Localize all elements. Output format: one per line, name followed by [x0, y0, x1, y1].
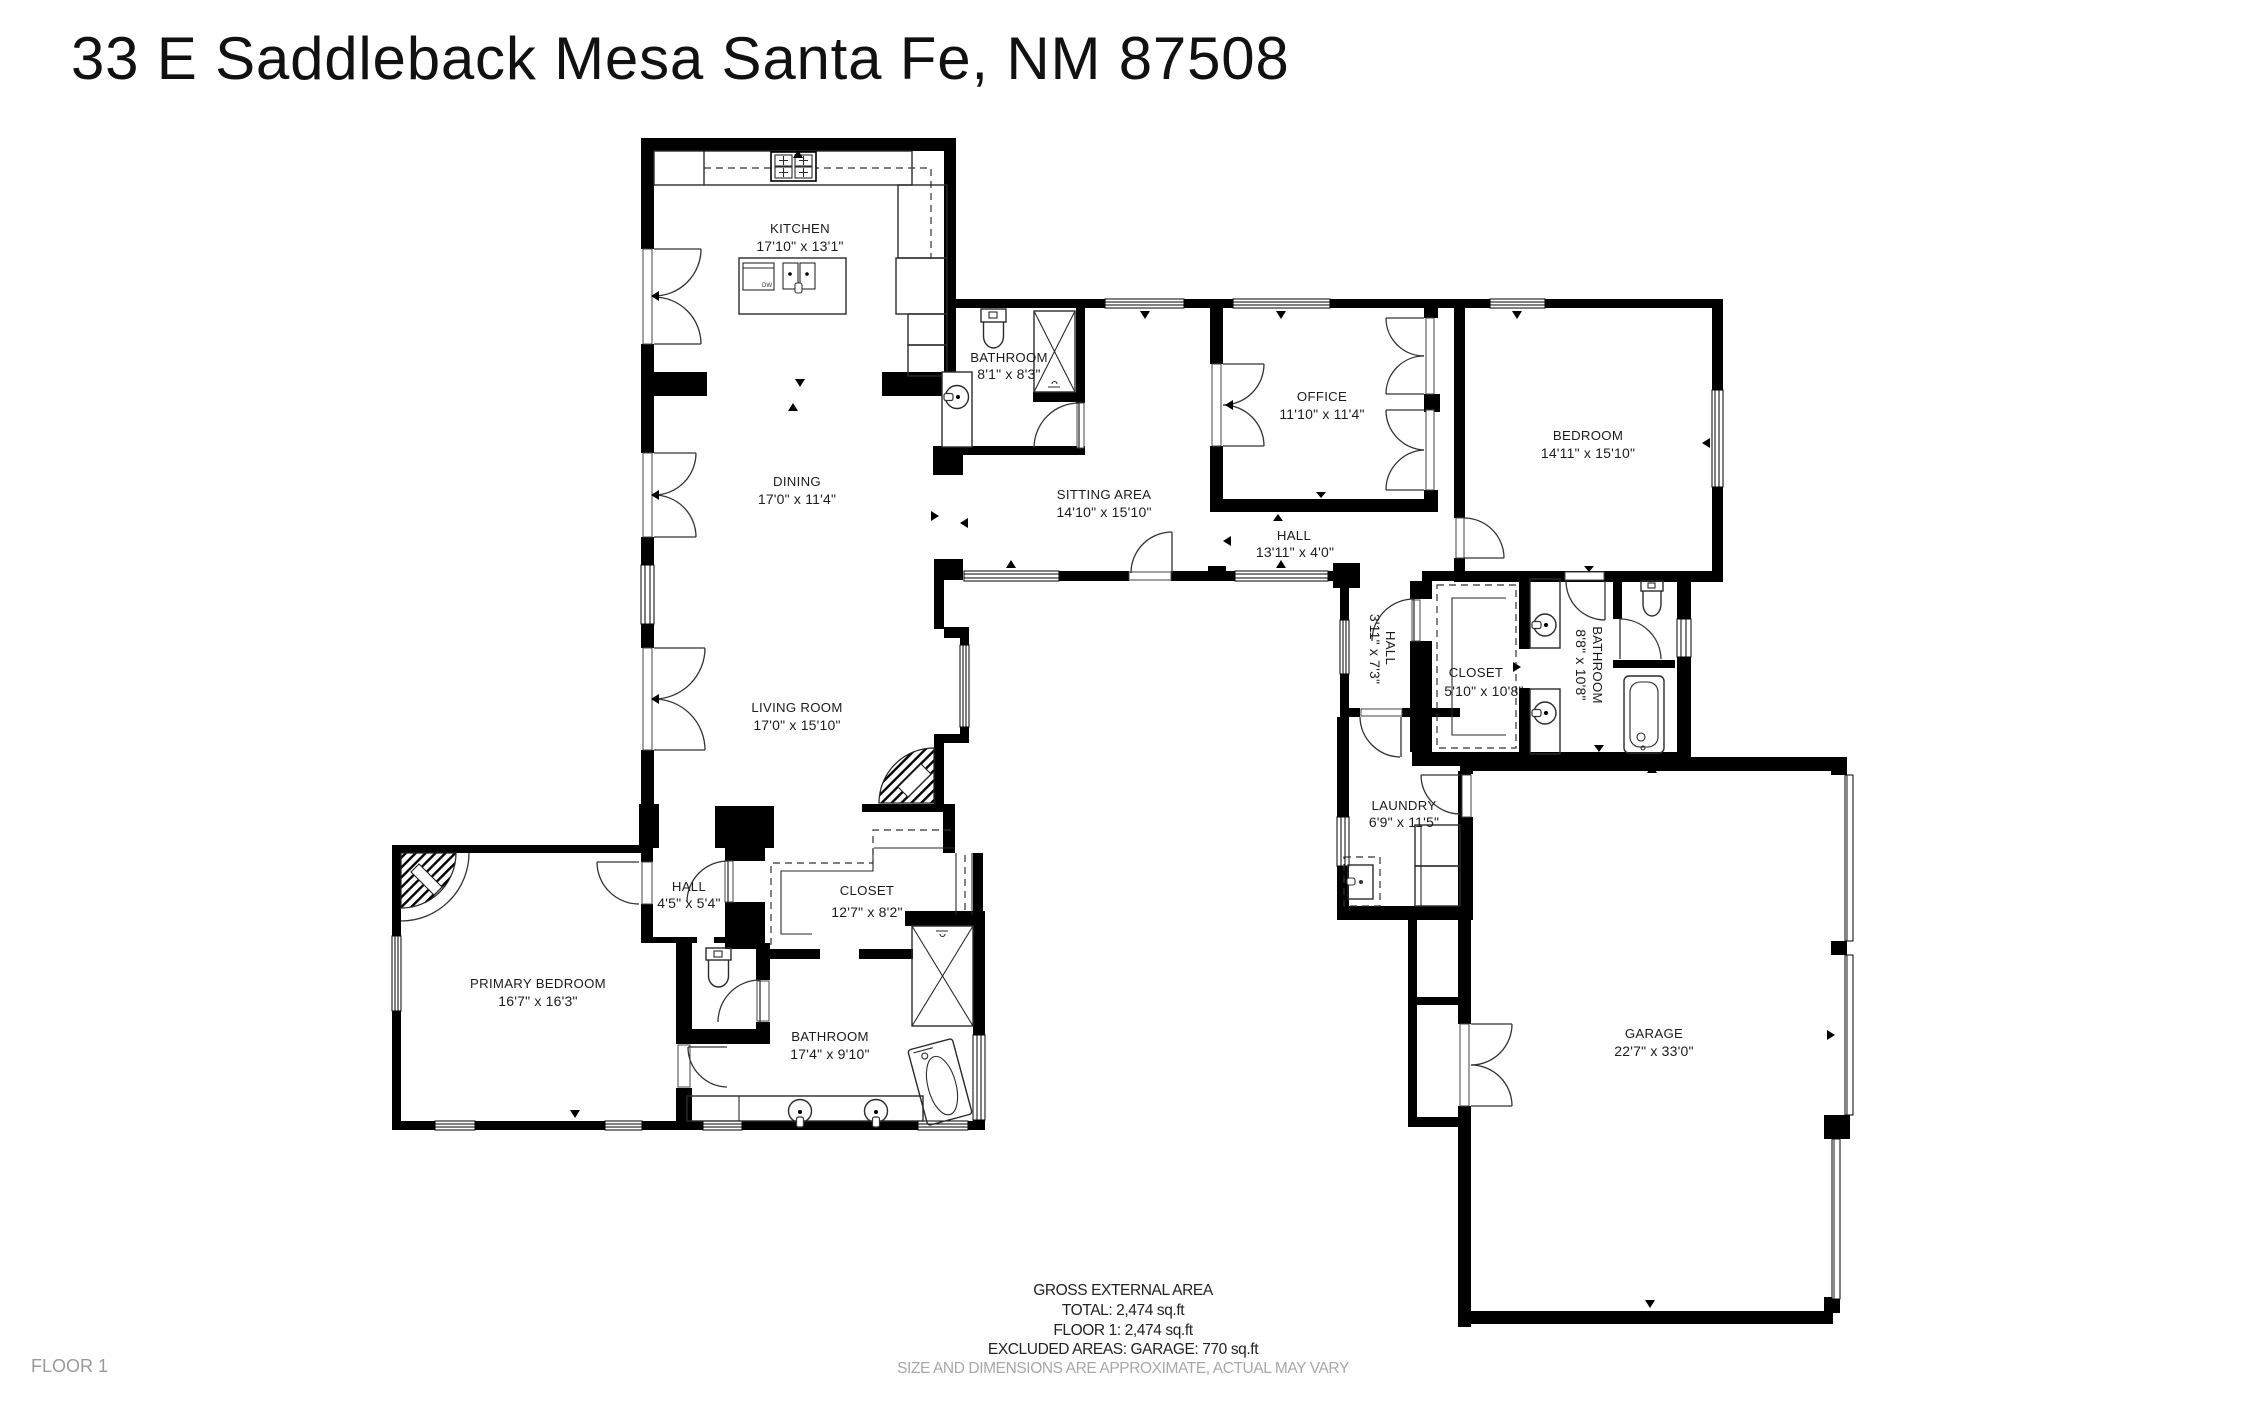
svg-text:SIZE AND DIMENSIONS ARE APPROX: SIZE AND DIMENSIONS ARE APPROXIMATE, ACT…	[897, 1360, 1349, 1377]
svg-text:8'1" x 8'3": 8'1" x 8'3"	[977, 366, 1040, 382]
svg-text:14'11" x 15'10": 14'11" x 15'10"	[1541, 445, 1635, 461]
svg-text:FLOOR 1: 2,474 sq.ft: FLOOR 1: 2,474 sq.ft	[1053, 1322, 1193, 1339]
svg-text:16'7" x 16'3": 16'7" x 16'3"	[498, 993, 577, 1009]
svg-text:8'8" x 10'8": 8'8" x 10'8"	[1573, 629, 1589, 700]
svg-text:HALL: HALL	[1277, 528, 1311, 543]
svg-text:CLOSET: CLOSET	[840, 883, 895, 898]
svg-text:3'11" x 7'3": 3'11" x 7'3"	[1367, 614, 1383, 684]
svg-text:EXCLUDED AREAS: GARAGE: 770 sq: EXCLUDED AREAS: GARAGE: 770 sq.ft	[988, 1341, 1259, 1358]
svg-text:LAUNDRY: LAUNDRY	[1372, 798, 1437, 813]
svg-text:4'5" x 5'4": 4'5" x 5'4"	[657, 895, 720, 911]
svg-text:BATHROOM: BATHROOM	[970, 350, 1048, 365]
svg-text:17'0" x 11'4": 17'0" x 11'4"	[758, 491, 836, 507]
svg-text:22'7" x 33'0": 22'7" x 33'0"	[1614, 1043, 1693, 1059]
svg-text:BATHROOM: BATHROOM	[1590, 626, 1605, 704]
svg-text:FLOOR 1: FLOOR 1	[31, 1356, 108, 1376]
svg-text:5'10" x 10'8": 5'10" x 10'8"	[1444, 683, 1523, 699]
svg-text:CLOSET: CLOSET	[1449, 665, 1504, 680]
svg-text:KITCHEN: KITCHEN	[770, 221, 830, 236]
svg-text:SITTING AREA: SITTING AREA	[1057, 487, 1151, 502]
svg-text:OFFICE: OFFICE	[1297, 389, 1347, 404]
svg-text:14'10" x 15'10": 14'10" x 15'10"	[1056, 504, 1151, 520]
svg-text:HALL: HALL	[672, 879, 706, 894]
svg-text:GROSS EXTERNAL AREA: GROSS EXTERNAL AREA	[1033, 1282, 1214, 1299]
svg-text:HALL: HALL	[1383, 631, 1398, 665]
svg-text:PRIMARY BEDROOM: PRIMARY BEDROOM	[470, 976, 606, 991]
svg-text:DINING: DINING	[773, 474, 821, 489]
svg-text:17'0" x 15'10": 17'0" x 15'10"	[753, 717, 840, 733]
svg-text:11'10" x 11'4": 11'10" x 11'4"	[1279, 406, 1364, 422]
svg-text:12'7" x 8'2": 12'7" x 8'2"	[831, 904, 902, 920]
svg-text:BEDROOM: BEDROOM	[1553, 428, 1623, 443]
svg-text:LIVING ROOM: LIVING ROOM	[751, 700, 842, 715]
svg-text:TOTAL: 2,474 sq.ft: TOTAL: 2,474 sq.ft	[1062, 1302, 1185, 1319]
svg-text:6'9" x 11'5": 6'9" x 11'5"	[1369, 814, 1439, 830]
svg-text:GARAGE: GARAGE	[1625, 1026, 1683, 1041]
svg-text:33 E Saddleback Mesa Santa Fe,: 33 E Saddleback Mesa Santa Fe, NM 87508	[71, 25, 1290, 92]
svg-text:BATHROOM: BATHROOM	[791, 1029, 869, 1044]
svg-text:DW: DW	[762, 283, 772, 289]
svg-text:13'11" x 4'0": 13'11" x 4'0"	[1256, 544, 1334, 560]
svg-text:17'10" x 13'1": 17'10" x 13'1"	[756, 238, 843, 254]
svg-text:17'4" x 9'10": 17'4" x 9'10"	[790, 1046, 869, 1062]
